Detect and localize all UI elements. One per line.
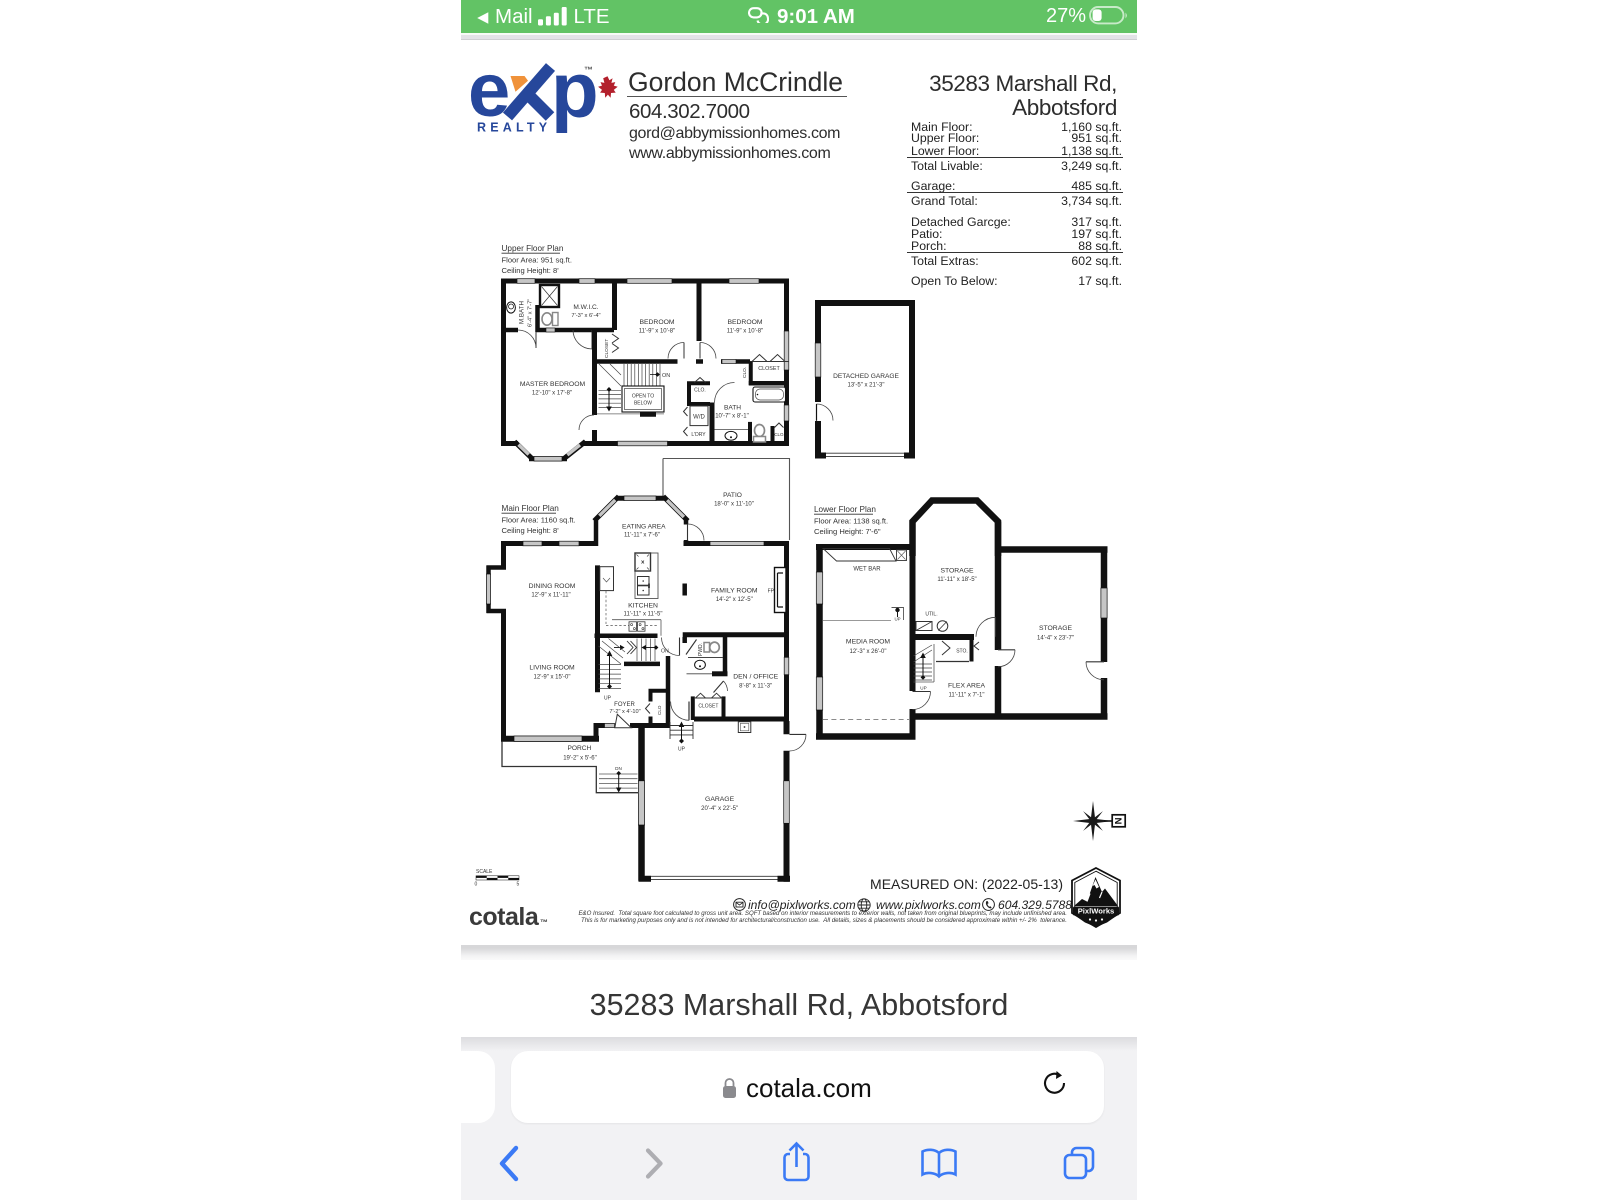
svg-text:DEN / OFFICE: DEN / OFFICE: [733, 674, 778, 681]
svg-text:M.BATH: M.BATH: [519, 301, 526, 324]
svg-text:DINING ROOM: DINING ROOM: [529, 583, 576, 590]
svg-text:CLO.: CLO.: [694, 388, 706, 394]
svg-text:12'-9" x 15'-0": 12'-9" x 15'-0": [534, 675, 571, 681]
svg-text:REALTY: REALTY: [477, 121, 551, 135]
svg-text:11'-9" x 10'-8": 11'-9" x 10'-8": [727, 329, 763, 335]
svg-text:UP: UP: [604, 696, 612, 702]
svg-text:Upper Floor Plan: Upper Floor Plan: [502, 244, 564, 253]
svg-text:Floor Area: 1160 sq.ft.: Floor Area: 1160 sq.ft.: [502, 516, 576, 525]
svg-text:8'-8" x 11'-3": 8'-8" x 11'-3": [739, 684, 772, 690]
svg-text:10'-7" x 8'-1": 10'-7" x 8'-1": [715, 414, 749, 420]
svg-text:BEDROOM: BEDROOM: [727, 319, 762, 326]
svg-text:BATH: BATH: [724, 405, 741, 412]
svg-text:DETACHED GARAGE: DETACHED GARAGE: [833, 373, 899, 380]
svg-text:KITCHEN: KITCHEN: [628, 603, 658, 610]
svg-text:13'-5" x 21'-3": 13'-5" x 21'-3": [848, 383, 885, 389]
svg-text:STORAGE: STORAGE: [1039, 625, 1073, 632]
svg-text:Ceiling Height: 8': Ceiling Height: 8': [502, 526, 560, 535]
svg-text:GARAGE: GARAGE: [705, 796, 735, 803]
svg-text:18'-0" x 11'-10": 18'-0" x 11'-10": [714, 502, 754, 508]
svg-text:Ceiling Height: 8': Ceiling Height: 8': [502, 266, 560, 275]
svg-text:0: 0: [475, 882, 478, 888]
svg-text:UP: UP: [678, 747, 686, 753]
svg-text:BELOW: BELOW: [634, 401, 652, 407]
svg-text:14'-2" x 12'-5": 14'-2" x 12'-5": [716, 597, 753, 603]
svg-text:M.W.I.C.: M.W.I.C.: [573, 304, 598, 311]
svg-text:CLO: CLO: [657, 705, 662, 715]
svg-text:UP: UP: [920, 686, 926, 691]
svg-text:STO.: STO.: [956, 649, 968, 655]
svg-text:FOYER: FOYER: [614, 702, 635, 708]
svg-text:EATING AREA: EATING AREA: [622, 524, 666, 531]
svg-text:12'-9" x 11'-11": 12'-9" x 11'-11": [531, 593, 570, 599]
svg-text:7'-3" x 6'-4": 7'-3" x 6'-4": [571, 313, 600, 319]
svg-text:CLOSET: CLOSET: [698, 704, 718, 710]
svg-text:11'-11" x 7'-1": 11'-11" x 7'-1": [948, 693, 984, 699]
svg-text:LIVING ROOM: LIVING ROOM: [529, 665, 575, 672]
svg-text:WET BAR: WET BAR: [853, 567, 881, 573]
svg-text:W/D: W/D: [693, 415, 705, 421]
svg-text:PORCH: PORCH: [567, 745, 591, 752]
svg-text:PWD.: PWD.: [698, 643, 704, 656]
svg-text:BEDROOM: BEDROOM: [639, 319, 674, 326]
svg-text:PixlWorks: PixlWorks: [1078, 907, 1115, 916]
svg-text:PATIO: PATIO: [723, 492, 742, 499]
svg-text:MEDIA ROOM: MEDIA ROOM: [846, 639, 891, 646]
svg-text:CLOSET: CLOSET: [604, 339, 610, 358]
svg-text:Lower Floor Plan: Lower Floor Plan: [814, 505, 876, 514]
svg-text:11'-11" x 18'-5": 11'-11" x 18'-5": [937, 577, 976, 583]
svg-text:11'-11" x 7'-6": 11'-11" x 7'-6": [624, 533, 660, 539]
svg-text:OPEN TO: OPEN TO: [632, 394, 654, 400]
svg-text:7'-2" x 4'-10": 7'-2" x 4'-10": [609, 709, 640, 715]
svg-text:CLOSET: CLOSET: [758, 366, 780, 372]
svg-text:Ceiling Height: 7'-6": Ceiling Height: 7'-6": [814, 527, 881, 536]
svg-text:CLO.: CLO.: [774, 432, 784, 437]
svg-text:FLEX AREA: FLEX AREA: [948, 683, 985, 690]
svg-text:11'-9" x 10'-8": 11'-9" x 10'-8": [639, 329, 675, 335]
svg-text:6'-4" x 7'-7": 6'-4" x 7'-7": [528, 299, 534, 327]
svg-text:Main Floor Plan: Main Floor Plan: [502, 504, 560, 513]
svg-text:FAMILY ROOM: FAMILY ROOM: [711, 588, 758, 595]
svg-text:™: ™: [584, 65, 593, 75]
svg-text:5: 5: [517, 882, 520, 888]
svg-text:12'-10" x 17'-8": 12'-10" x 17'-8": [532, 391, 572, 397]
svg-text:12'-3" x 26'-0": 12'-3" x 26'-0": [850, 649, 887, 655]
svg-text:N: N: [1112, 818, 1123, 825]
svg-text:L'DRY: L'DRY: [691, 432, 706, 438]
svg-text:UTIL.: UTIL.: [925, 612, 937, 618]
svg-text:20'-4" x 22'-5": 20'-4" x 22'-5": [701, 806, 738, 812]
svg-text:Floor Area: 951 sq.ft.: Floor Area: 951 sq.ft.: [502, 256, 573, 265]
svg-text:11'-11" x 11'-5": 11'-11" x 11'-5": [624, 612, 663, 618]
svg-text:STORAGE: STORAGE: [940, 568, 974, 575]
svg-text:14'-4" x 23'-7": 14'-4" x 23'-7": [1037, 636, 1074, 642]
svg-text:19'-2" x 5'-6": 19'-2" x 5'-6": [563, 756, 597, 762]
svg-text:MASTER BEDROOM: MASTER BEDROOM: [520, 381, 586, 388]
svg-text:FP: FP: [768, 589, 775, 595]
svg-text:SCALE: SCALE: [476, 869, 493, 875]
svg-text:CLO.: CLO.: [742, 367, 748, 378]
svg-text:ON: ON: [662, 373, 670, 379]
svg-text:Floor Area: 1138 sq.ft.: Floor Area: 1138 sq.ft.: [814, 517, 888, 526]
svg-text:DN: DN: [615, 766, 622, 771]
svg-text:UP: UP: [894, 617, 900, 622]
